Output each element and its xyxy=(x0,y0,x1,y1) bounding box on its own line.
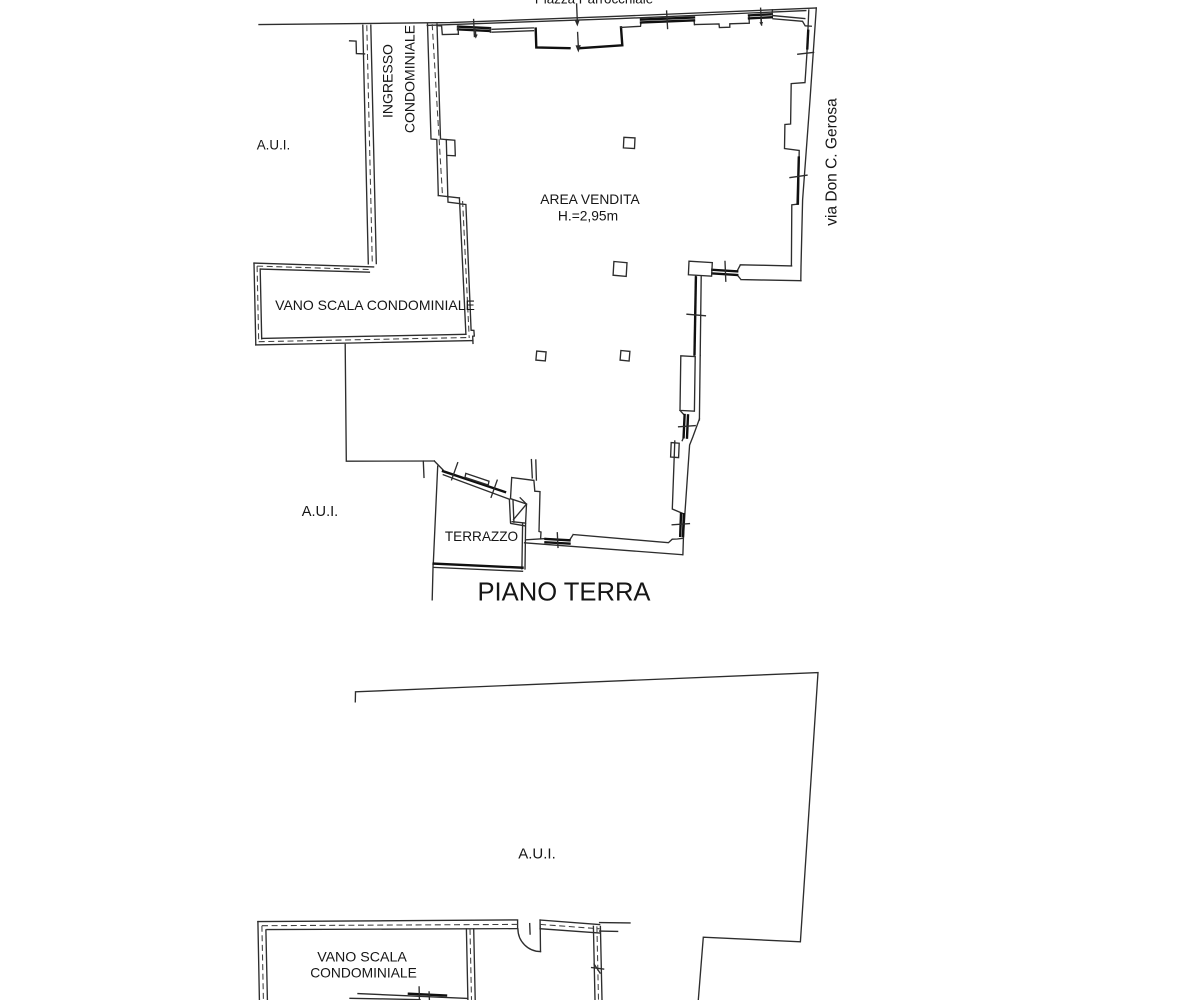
svg-text:Piazza Parrocchiale: Piazza Parrocchiale xyxy=(535,0,653,6)
svg-text:CONDOMINIALE: CONDOMINIALE xyxy=(310,966,417,981)
svg-text:INGRESSO: INGRESSO xyxy=(380,44,396,118)
svg-text:via Don C. Gerosa: via Don C. Gerosa xyxy=(824,98,841,226)
svg-text:A.U.I.: A.U.I. xyxy=(257,138,290,153)
svg-text:VANO SCALA CONDOMINIALE: VANO SCALA CONDOMINIALE xyxy=(275,297,475,313)
svg-text:TERRAZZO: TERRAZZO xyxy=(445,529,518,544)
svg-text:A.U.I.: A.U.I. xyxy=(302,504,339,520)
svg-text:H.=2,95m: H.=2,95m xyxy=(558,209,618,224)
svg-text:A.U.I.: A.U.I. xyxy=(518,845,556,862)
svg-text:PIANO TERRA: PIANO TERRA xyxy=(477,579,651,607)
svg-text:VANO SCALA: VANO SCALA xyxy=(317,949,407,965)
svg-text:AREA VENDITA: AREA VENDITA xyxy=(540,192,640,207)
svg-text:CONDOMINIALE: CONDOMINIALE xyxy=(402,25,418,133)
